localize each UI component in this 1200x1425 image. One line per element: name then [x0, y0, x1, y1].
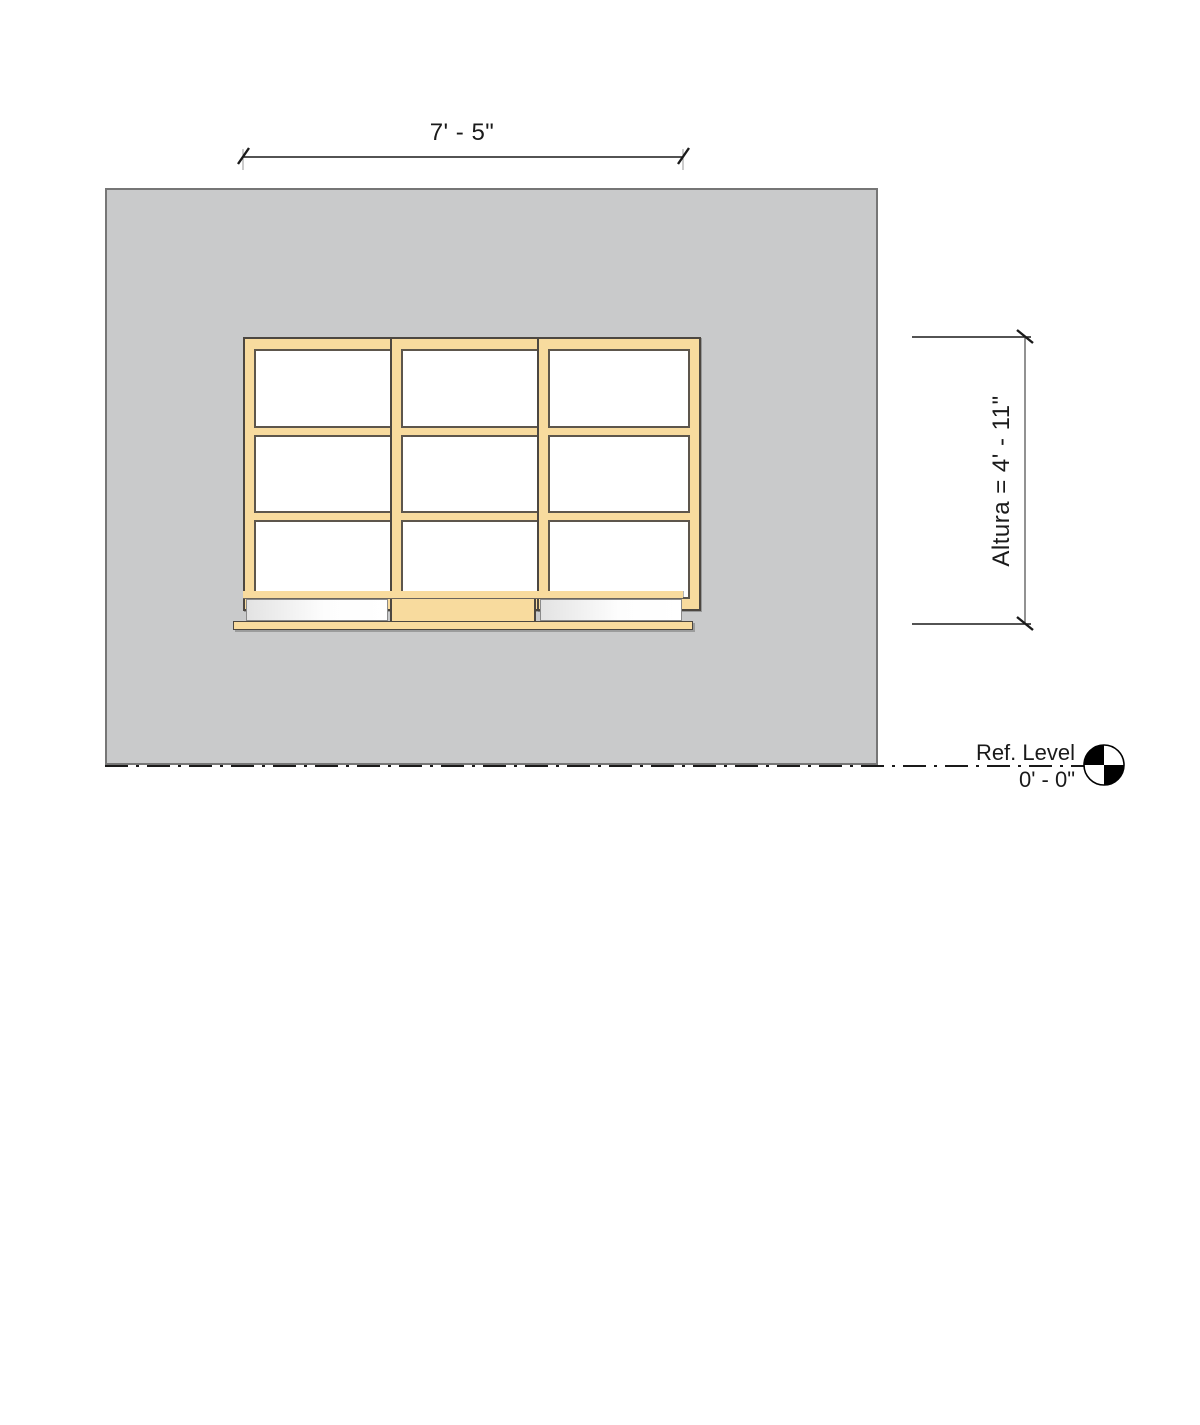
annotation-overlay [0, 0, 1200, 1425]
level-elevation-label[interactable]: 0' - 0" [935, 767, 1075, 793]
dimension-width-label[interactable]: 7' - 5" [362, 119, 562, 147]
dimension-height-label[interactable]: Altura = 4' - 11" [988, 371, 1014, 591]
level-name-label[interactable]: Ref. Level [935, 740, 1075, 766]
elevation-view-canvas: 7' - 5" Altura = 4' - 11" Ref. Level 0' … [0, 0, 1200, 1425]
level-head-target-icon [1084, 745, 1124, 785]
dimension-width[interactable] [238, 148, 689, 170]
